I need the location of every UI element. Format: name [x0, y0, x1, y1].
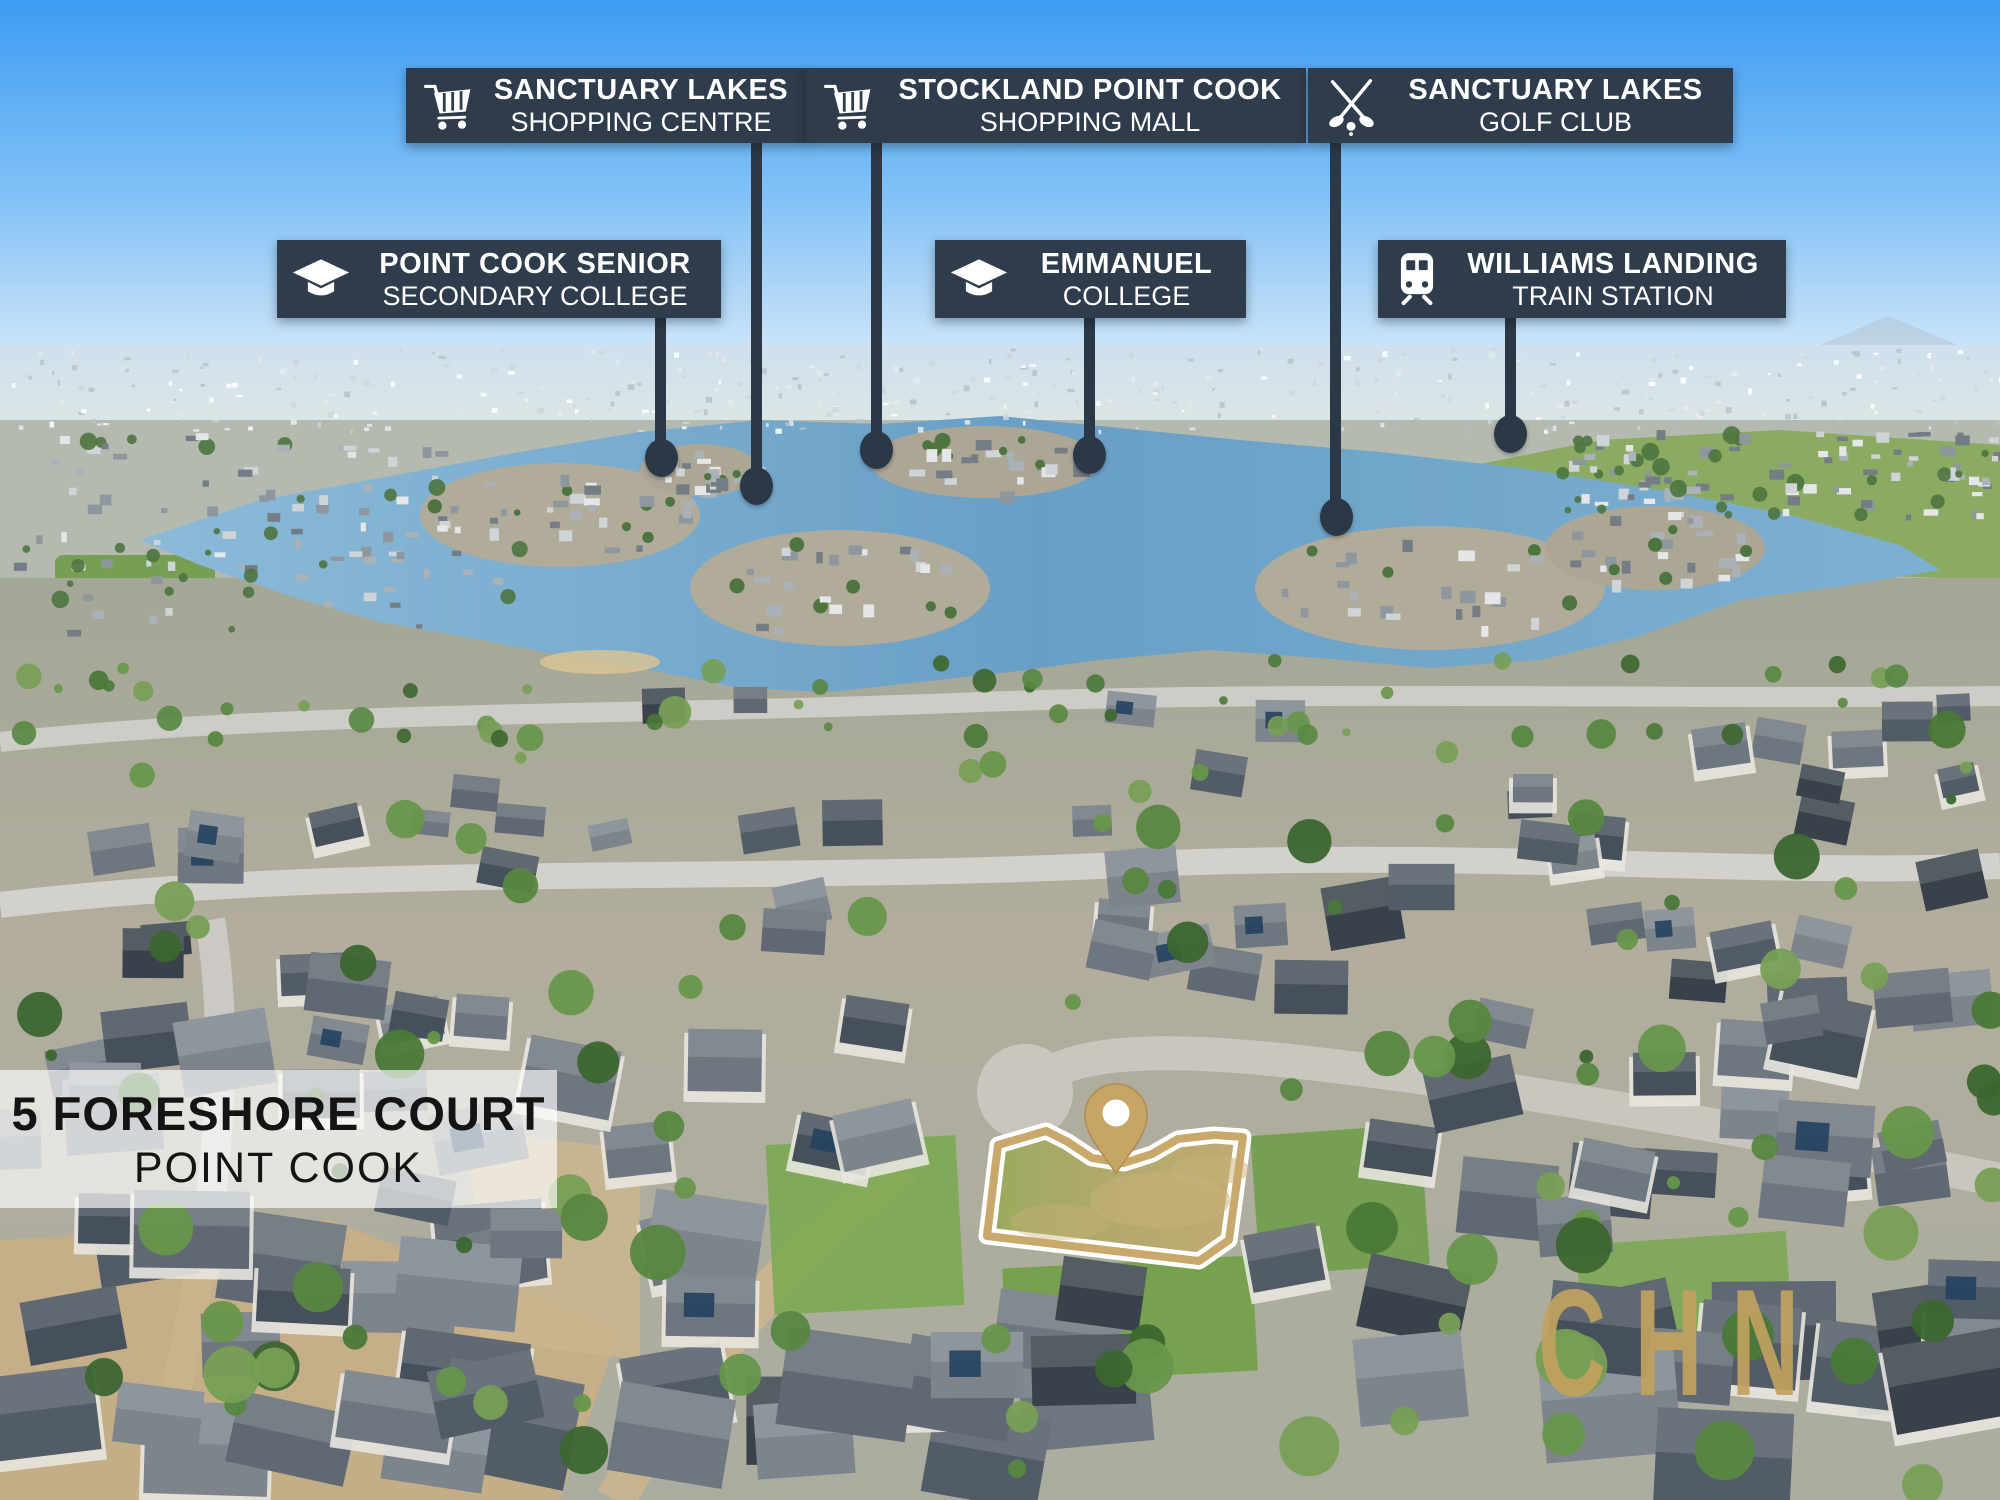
callout-line2: SHOPPING CENTRE: [486, 107, 796, 137]
train-icon: [1392, 250, 1442, 308]
map-dot-williams-landing-station: [1494, 415, 1527, 453]
leader-line-sanctuary-lakes-golf-club: [1330, 143, 1341, 517]
map-dot-stockland-point-cook: [860, 431, 893, 469]
leader-line-emmanuel-college: [1084, 318, 1095, 455]
callout-line1: STOCKLAND POINT COOK: [886, 73, 1294, 107]
callout-line1: POINT COOK SENIOR: [361, 247, 709, 281]
shopping-cart-icon: [820, 77, 876, 135]
golf-clubs-icon: [1322, 76, 1380, 136]
map-dot-sanctuary-lakes-shopping-centre: [740, 467, 773, 505]
callout-line1: WILLIAMS LANDING: [1452, 247, 1774, 281]
map-dot-sanctuary-lakes-golf-club: [1320, 498, 1353, 536]
callout-text: WILLIAMS LANDING TRAIN STATION: [1452, 247, 1774, 311]
aerial-photo: SANCTUARY LAKES SHOPPING CENTRE STOCKLAN…: [0, 0, 2000, 1500]
callout-text: EMMANUEL COLLEGE: [1019, 247, 1234, 311]
graduation-cap-icon: [949, 254, 1009, 304]
callout-line2: SHOPPING MALL: [886, 107, 1294, 137]
address-plate: 5 FORESHORE COURT POINT COOK: [0, 1070, 557, 1208]
callout-emmanuel-college: EMMANUEL COLLEGE: [935, 240, 1246, 318]
callout-line1: SANCTUARY LAKES: [486, 73, 796, 107]
callout-line1: EMMANUEL: [1019, 247, 1234, 281]
callout-line2: COLLEGE: [1019, 281, 1234, 311]
callout-line2: GOLF CLUB: [1390, 107, 1721, 137]
callout-text: POINT COOK SENIOR SECONDARY COLLEGE: [361, 247, 709, 311]
callout-sanctuary-lakes-golf-club: SANCTUARY LAKES GOLF CLUB: [1308, 68, 1733, 143]
map-dot-emmanuel-college: [1073, 436, 1106, 474]
shopping-cart-icon: [420, 77, 476, 135]
callout-stockland-point-cook: STOCKLAND POINT COOK SHOPPING MALL: [806, 68, 1306, 143]
map-dot-point-cook-senior-college: [645, 439, 678, 477]
callout-sanctuary-lakes-shopping-centre: SANCTUARY LAKES SHOPPING CENTRE: [406, 68, 808, 143]
callout-point-cook-senior-college: POINT COOK SENIOR SECONDARY COLLEGE: [277, 240, 721, 318]
callout-line2: SECONDARY COLLEGE: [361, 281, 709, 311]
callout-line2: TRAIN STATION: [1452, 281, 1774, 311]
leader-line-point-cook-senior-college: [655, 318, 666, 458]
address-line2: POINT COOK: [0, 1144, 557, 1193]
callout-text: SANCTUARY LAKES SHOPPING CENTRE: [486, 73, 796, 137]
callout-text: SANCTUARY LAKES GOLF CLUB: [1390, 73, 1721, 137]
graduation-cap-icon: [291, 254, 351, 304]
callout-line1: SANCTUARY LAKES: [1390, 73, 1721, 107]
leader-line-stockland-point-cook: [871, 143, 882, 450]
address-line1: 5 FORESHORE COURT: [0, 1085, 557, 1144]
agency-watermark: CHN: [1538, 1256, 1828, 1431]
callout-text: STOCKLAND POINT COOK SHOPPING MALL: [886, 73, 1294, 137]
callout-williams-landing-station: WILLIAMS LANDING TRAIN STATION: [1378, 240, 1786, 318]
leader-line-sanctuary-lakes-shopping-centre: [751, 143, 762, 486]
